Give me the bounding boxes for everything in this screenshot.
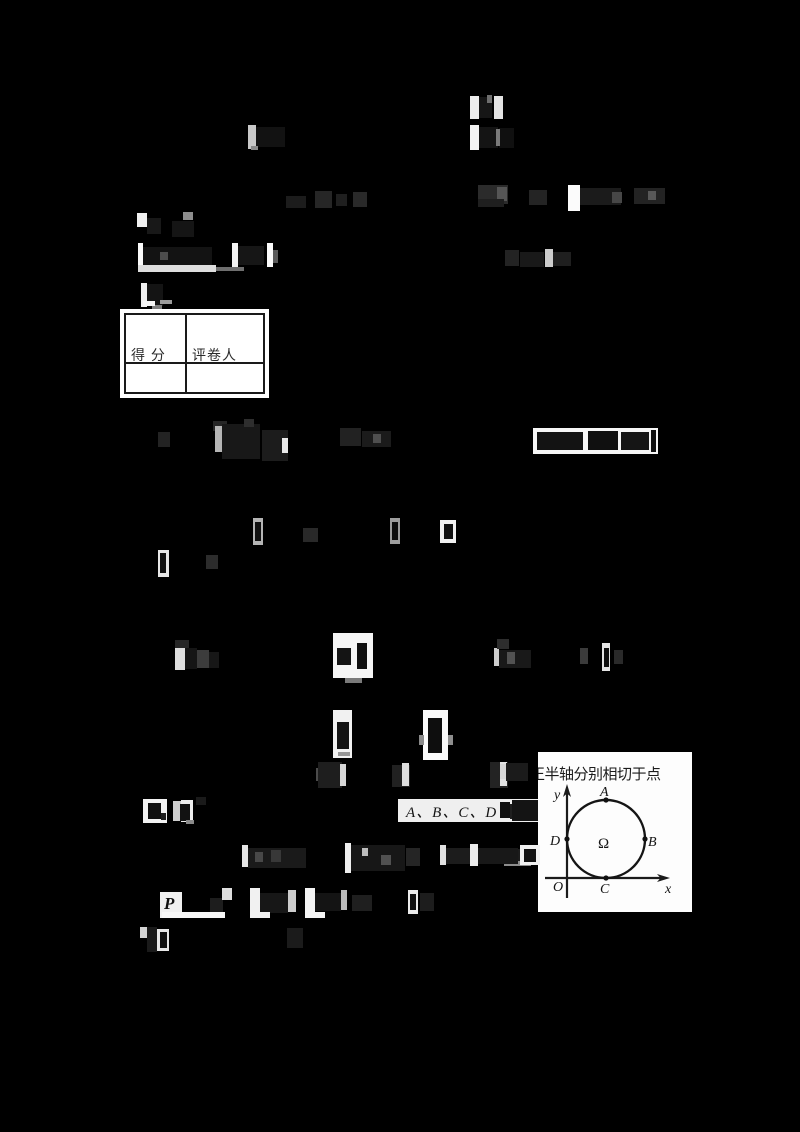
scan-fragment bbox=[255, 852, 263, 862]
scan-fragment bbox=[529, 190, 547, 205]
scan-fragment bbox=[478, 848, 518, 864]
scan-fragment bbox=[512, 800, 538, 821]
scan-fragment bbox=[537, 432, 583, 450]
scan-fragment bbox=[251, 146, 258, 150]
scan-fragment bbox=[580, 648, 588, 664]
scan-fragment bbox=[410, 894, 416, 910]
scan-fragment bbox=[648, 191, 656, 200]
score-table-vertical-divider bbox=[185, 313, 187, 394]
scan-fragment bbox=[499, 128, 514, 148]
p-symbol-text: P bbox=[164, 894, 174, 914]
scan-fragment bbox=[545, 249, 553, 267]
scan-fragment bbox=[209, 652, 219, 668]
scan-fragment bbox=[444, 524, 453, 539]
point-d-dot bbox=[564, 836, 569, 841]
scan-fragment bbox=[137, 213, 147, 227]
scan-fragment bbox=[305, 888, 315, 912]
scan-fragment bbox=[161, 813, 166, 820]
scan-fragment bbox=[392, 522, 398, 540]
scan-fragment bbox=[160, 553, 166, 573]
scan-fragment bbox=[651, 430, 656, 452]
scan-fragment bbox=[160, 932, 167, 948]
coordinate-diagram: y A D Ω B O C x bbox=[538, 752, 692, 912]
scan-fragment bbox=[520, 252, 544, 267]
scan-fragment bbox=[478, 199, 504, 207]
scan-fragment bbox=[337, 648, 351, 665]
scan-fragment bbox=[487, 95, 492, 103]
scan-fragment bbox=[553, 252, 571, 266]
scan-fragment bbox=[315, 893, 341, 911]
scan-fragment bbox=[206, 555, 218, 569]
x-axis-label: x bbox=[664, 882, 672, 897]
scan-fragment bbox=[148, 803, 161, 819]
options-text: A、B、C、D bbox=[406, 801, 497, 822]
scan-fragment bbox=[271, 850, 281, 862]
scan-fragment bbox=[612, 192, 622, 203]
y-axis-label: y bbox=[552, 788, 561, 803]
point-d-label: D bbox=[549, 834, 560, 849]
scan-fragment bbox=[158, 432, 170, 447]
scan-fragment bbox=[362, 848, 368, 856]
score-table: 得 分 评卷人 bbox=[120, 309, 269, 398]
scan-fragment bbox=[186, 820, 194, 824]
scan-fragment bbox=[381, 855, 391, 865]
scan-fragment bbox=[336, 194, 347, 206]
scan-fragment bbox=[143, 301, 155, 306]
scan-fragment bbox=[373, 434, 381, 443]
scan-fragment bbox=[500, 802, 510, 818]
scan-fragment bbox=[147, 218, 161, 234]
circle-center-label: Ω bbox=[598, 836, 609, 852]
scan-fragment bbox=[273, 250, 278, 263]
scan-fragment bbox=[505, 250, 519, 266]
scan-fragment bbox=[175, 648, 185, 670]
scan-fragment bbox=[244, 419, 254, 427]
scan-fragment bbox=[524, 849, 536, 862]
scan-fragment bbox=[353, 192, 367, 207]
scan-fragment bbox=[494, 96, 503, 119]
scan-fragment bbox=[140, 927, 147, 938]
score-label: 得 分 bbox=[131, 345, 166, 365]
point-b-label: B bbox=[648, 835, 657, 850]
scan-fragment bbox=[420, 893, 434, 911]
scan-fragment bbox=[216, 267, 244, 271]
scan-fragment bbox=[185, 648, 197, 669]
scan-fragment bbox=[496, 129, 500, 146]
scan-fragment bbox=[255, 522, 261, 541]
scan-fragment bbox=[162, 912, 225, 918]
scan-fragment bbox=[287, 928, 303, 948]
scan-fragment bbox=[288, 890, 296, 912]
scan-fragment bbox=[215, 426, 222, 452]
scan-fragment bbox=[428, 718, 442, 753]
scan-fragment bbox=[507, 652, 515, 664]
scan-fragment bbox=[357, 643, 367, 669]
scan-fragment bbox=[143, 247, 212, 265]
scan-fragment bbox=[341, 890, 347, 910]
scan-fragment bbox=[175, 640, 189, 648]
point-c-label: C bbox=[600, 882, 610, 897]
scan-fragment bbox=[604, 648, 609, 667]
scan-fragment bbox=[351, 845, 405, 871]
scan-fragment bbox=[621, 432, 649, 450]
scan-fragment bbox=[160, 252, 168, 260]
scan-fragment bbox=[303, 528, 318, 542]
scan-fragment bbox=[305, 912, 325, 918]
scan-fragment bbox=[406, 848, 420, 866]
scan-fragment bbox=[180, 804, 190, 821]
scan-fragment bbox=[160, 300, 172, 304]
scan-fragment bbox=[588, 431, 618, 450]
scan-fragment bbox=[286, 196, 306, 208]
scan-fragment bbox=[352, 895, 372, 911]
scan-fragment bbox=[337, 722, 349, 749]
scan-fragment bbox=[446, 848, 470, 864]
scan-fragment bbox=[340, 428, 361, 446]
point-c-dot bbox=[603, 875, 608, 880]
scan-fragment bbox=[196, 797, 206, 805]
scan-fragment bbox=[282, 438, 288, 453]
scan-fragment bbox=[197, 650, 209, 668]
scan-fragment bbox=[614, 650, 623, 664]
scan-fragment bbox=[222, 424, 260, 459]
scan-fragment bbox=[568, 185, 580, 211]
scan-fragment bbox=[506, 763, 528, 781]
circle-tangent-figure: 正半轴分别相切于点 y A D Ω B O C x bbox=[538, 752, 692, 912]
scan-fragment bbox=[345, 678, 362, 683]
scan-fragment bbox=[256, 127, 285, 147]
scan-fragment bbox=[138, 265, 216, 272]
scanned-exam-page: 得 分 评卷人 正半轴分别相切于点 y A D Ω B O C bbox=[0, 0, 800, 1132]
scan-fragment bbox=[315, 191, 332, 208]
point-b-dot bbox=[642, 836, 647, 841]
scan-fragment bbox=[340, 764, 346, 786]
scan-fragment bbox=[470, 125, 479, 150]
scan-fragment bbox=[172, 221, 194, 237]
scan-fragment bbox=[402, 763, 409, 786]
scan-fragment bbox=[470, 844, 478, 866]
scan-fragment bbox=[183, 212, 193, 220]
scan-fragment bbox=[318, 762, 342, 788]
grader-label: 评卷人 bbox=[192, 345, 237, 365]
scan-fragment bbox=[238, 246, 264, 265]
scan-fragment bbox=[338, 752, 350, 756]
scan-fragment bbox=[419, 735, 424, 745]
scan-fragment bbox=[250, 888, 260, 914]
scan-fragment bbox=[470, 96, 479, 119]
scan-fragment bbox=[448, 735, 453, 745]
scan-fragment bbox=[222, 888, 232, 900]
scan-fragment bbox=[499, 650, 531, 668]
point-a-label: A bbox=[599, 785, 609, 800]
scan-fragment bbox=[250, 912, 270, 918]
scan-fragment bbox=[147, 927, 157, 952]
scan-fragment bbox=[497, 639, 509, 649]
origin-label: O bbox=[553, 880, 563, 895]
scan-fragment bbox=[260, 893, 288, 913]
